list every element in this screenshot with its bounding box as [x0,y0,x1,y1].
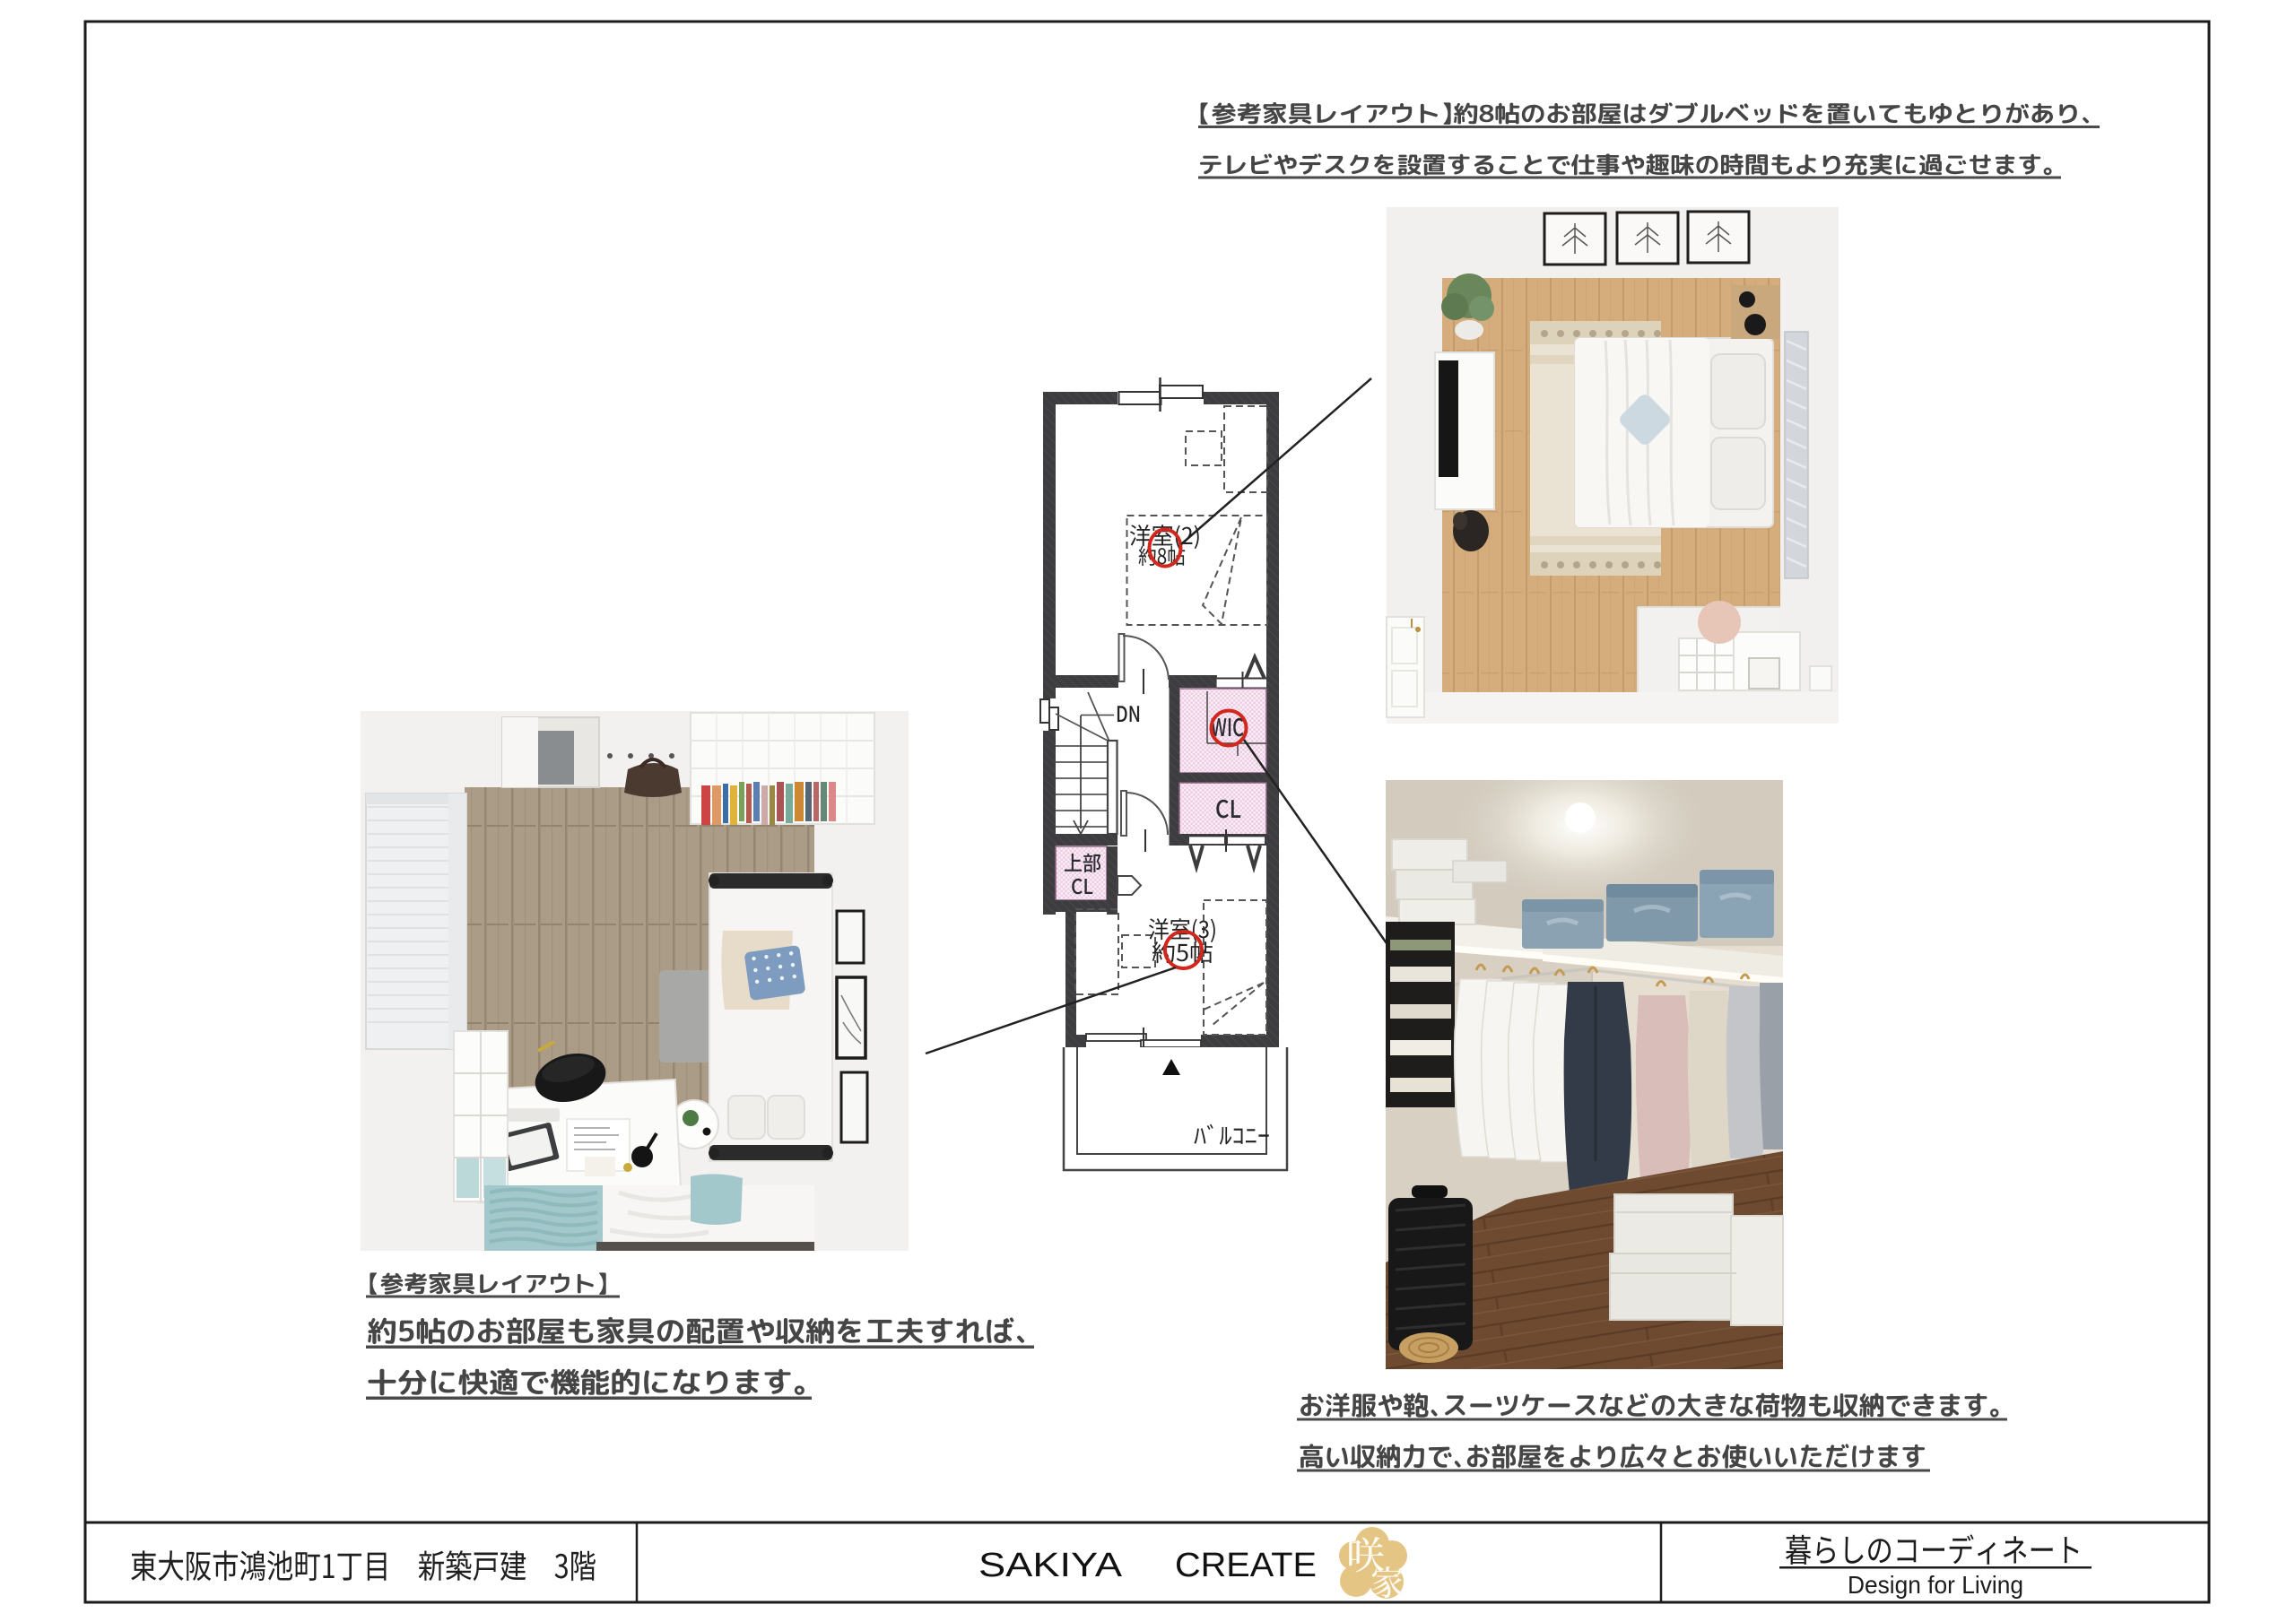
svg-text:SAKIYA: SAKIYA [978,1547,1123,1584]
svg-text:CREATE: CREATE [1175,1547,1317,1584]
svg-text:Design for Living: Design for Living [1848,1571,2023,1599]
